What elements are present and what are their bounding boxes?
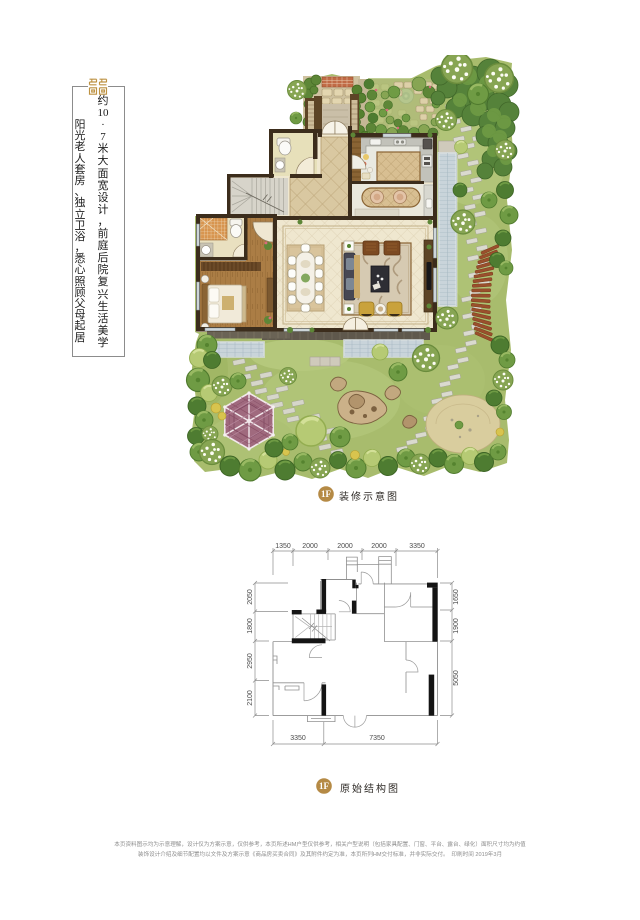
svg-text:1350: 1350 [275,543,291,550]
svg-text:2950: 2950 [247,653,254,669]
svg-text:2000: 2000 [337,543,353,550]
svg-text:3350: 3350 [290,735,306,742]
svg-text:2100: 2100 [247,690,254,706]
svg-text:1800: 1800 [247,618,254,634]
svg-text:7350: 7350 [369,735,385,742]
svg-text:1900: 1900 [453,618,460,634]
svg-text:2000: 2000 [371,543,387,550]
svg-text:5050: 5050 [453,670,460,686]
svg-text:1650: 1650 [453,589,460,605]
svg-text:2050: 2050 [247,589,254,605]
svg-text:1F: 1F [319,781,330,791]
svg-text:3350: 3350 [409,543,425,550]
svg-text:1F: 1F [321,489,332,499]
svg-text:2000: 2000 [302,543,318,550]
